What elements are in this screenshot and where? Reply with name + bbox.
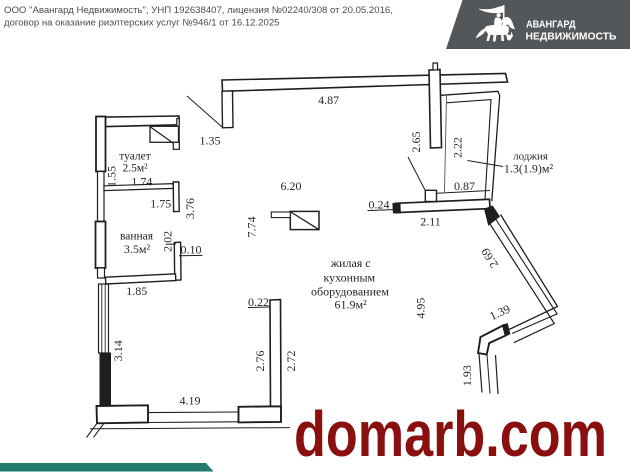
svg-text:2.76: 2.76: [253, 351, 267, 372]
svg-text:2.72: 2.72: [284, 351, 298, 372]
svg-text:ООО "Авангард Недвижимость", У: ООО "Авангард Недвижимость", УНП 1926384…: [4, 5, 393, 16]
svg-text:договор на оказание риэлтерски: договор на оказание риэлтерских услуг №9…: [4, 18, 280, 29]
svg-text:3.76: 3.76: [183, 198, 197, 219]
svg-text:АВАНГАРД: АВАНГАРД: [526, 19, 576, 31]
svg-text:1.3(1.9)м²: 1.3(1.9)м²: [504, 162, 554, 176]
svg-text:1.35: 1.35: [200, 133, 221, 147]
svg-text:domarb.com: domarb.com: [294, 398, 607, 470]
svg-text:3.5м²: 3.5м²: [124, 242, 151, 256]
svg-text:6.20: 6.20: [281, 179, 302, 193]
svg-text:2.5м²: 2.5м²: [122, 163, 148, 175]
svg-text:НЕДВИЖИМОСТЬ: НЕДВИЖИМОСТЬ: [526, 31, 617, 43]
svg-text:0.87: 0.87: [454, 179, 475, 193]
svg-text:4.95: 4.95: [414, 298, 428, 319]
svg-text:1.74: 1.74: [131, 175, 152, 189]
svg-text:2.11: 2.11: [420, 215, 441, 229]
svg-text:3.14: 3.14: [111, 340, 125, 361]
svg-text:1.93: 1.93: [460, 365, 474, 386]
svg-text:2.02: 2.02: [160, 231, 174, 252]
svg-text:61.9м²: 61.9м²: [334, 297, 367, 311]
svg-text:1.85: 1.85: [126, 284, 147, 298]
svg-text:0.10: 0.10: [181, 243, 202, 257]
svg-text:2.22: 2.22: [451, 137, 465, 158]
svg-text:0.22: 0.22: [248, 295, 269, 309]
svg-text:ванная: ванная: [120, 231, 154, 243]
svg-text:жилая с: жилая с: [330, 256, 371, 270]
svg-text:1.75: 1.75: [150, 197, 171, 211]
svg-text:2.65: 2.65: [409, 132, 423, 153]
svg-text:4.19: 4.19: [180, 393, 201, 407]
svg-text:туалет: туалет: [119, 150, 151, 162]
svg-text:4.87: 4.87: [318, 93, 339, 107]
svg-text:7.74: 7.74: [245, 217, 259, 238]
svg-text:0.24: 0.24: [369, 198, 390, 212]
svg-text:1.55: 1.55: [105, 166, 119, 187]
svg-text:кухонным: кухонным: [323, 270, 375, 284]
